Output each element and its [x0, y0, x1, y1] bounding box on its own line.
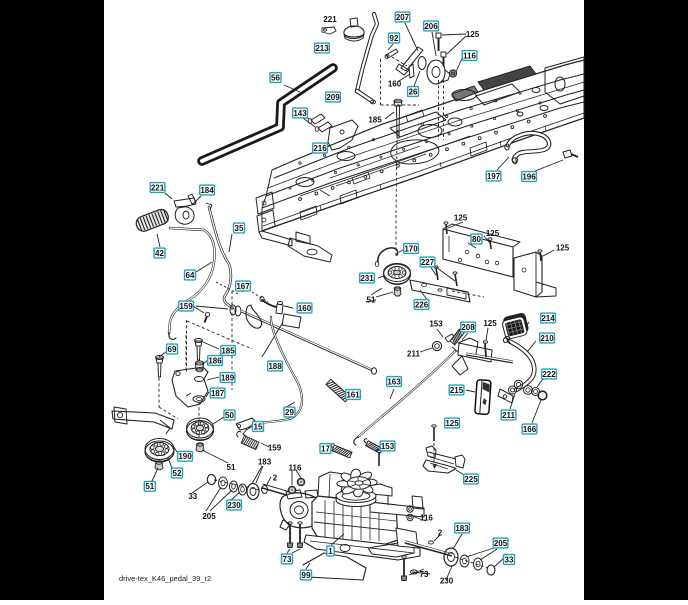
svg-text:125: 125	[486, 229, 500, 238]
svg-text:51: 51	[367, 295, 376, 304]
svg-text:73: 73	[283, 555, 292, 564]
svg-text:206: 206	[424, 22, 438, 31]
svg-text:52: 52	[173, 469, 182, 478]
svg-text:51: 51	[227, 463, 236, 472]
svg-text:197: 197	[487, 172, 501, 181]
svg-text:29: 29	[285, 408, 294, 417]
svg-text:170: 170	[404, 244, 418, 253]
svg-text:190: 190	[178, 452, 192, 461]
svg-text:221: 221	[151, 183, 165, 192]
svg-text:214: 214	[541, 314, 555, 323]
svg-text:196: 196	[522, 172, 536, 181]
svg-text:163: 163	[387, 377, 401, 386]
svg-text:215: 215	[450, 386, 464, 395]
svg-text:56: 56	[271, 73, 280, 82]
svg-text:153: 153	[429, 319, 443, 328]
svg-text:15: 15	[254, 422, 263, 431]
svg-text:125: 125	[445, 419, 459, 428]
svg-text:213: 213	[315, 44, 329, 53]
svg-text:159: 159	[179, 302, 193, 311]
svg-text:99: 99	[302, 571, 311, 580]
svg-text:35: 35	[235, 224, 244, 233]
svg-text:161: 161	[346, 390, 360, 399]
svg-text:125: 125	[483, 319, 497, 328]
svg-text:216: 216	[313, 144, 327, 153]
svg-text:208: 208	[461, 323, 475, 332]
svg-text:183: 183	[455, 524, 469, 533]
svg-text:188: 188	[268, 362, 282, 371]
svg-text:207: 207	[396, 13, 410, 22]
svg-text:183: 183	[258, 457, 272, 466]
svg-text:222: 222	[542, 370, 556, 379]
svg-text:167: 167	[236, 282, 250, 291]
svg-text:205: 205	[494, 539, 508, 548]
svg-text:33: 33	[505, 555, 514, 564]
svg-text:2: 2	[438, 528, 443, 537]
svg-text:drive-tex_K46_pedal_39_r2: drive-tex_K46_pedal_39_r2	[119, 574, 211, 583]
svg-text:160: 160	[298, 304, 312, 313]
svg-text:166: 166	[523, 425, 537, 434]
svg-text:209: 209	[326, 93, 340, 102]
svg-text:1: 1	[328, 547, 333, 556]
svg-text:17: 17	[321, 444, 330, 453]
svg-text:211: 211	[502, 411, 515, 420]
svg-text:226: 226	[415, 300, 429, 309]
svg-text:33: 33	[188, 492, 197, 501]
svg-text:185: 185	[368, 115, 382, 124]
svg-text:231: 231	[360, 274, 374, 283]
svg-text:184: 184	[200, 186, 214, 195]
svg-text:205: 205	[202, 512, 216, 521]
svg-text:230: 230	[440, 576, 454, 585]
svg-text:69: 69	[168, 345, 177, 354]
svg-text:185: 185	[221, 346, 235, 355]
svg-text:125: 125	[556, 243, 570, 252]
svg-text:225: 225	[464, 475, 478, 484]
svg-text:80: 80	[472, 235, 481, 244]
svg-text:50: 50	[225, 411, 234, 420]
svg-text:160: 160	[388, 79, 402, 88]
svg-text:189: 189	[221, 373, 235, 382]
svg-text:64: 64	[186, 271, 195, 280]
svg-text:92: 92	[390, 34, 399, 43]
svg-text:143: 143	[293, 109, 307, 118]
svg-text:227: 227	[421, 258, 435, 267]
svg-text:73: 73	[420, 570, 429, 579]
svg-text:230: 230	[227, 501, 241, 510]
svg-text:153: 153	[381, 442, 395, 451]
svg-text:125: 125	[466, 30, 480, 39]
svg-text:159: 159	[268, 443, 282, 452]
svg-text:51: 51	[145, 482, 154, 491]
svg-text:125: 125	[454, 213, 468, 222]
svg-text:186: 186	[208, 356, 222, 365]
svg-text:116: 116	[420, 514, 433, 523]
svg-text:210: 210	[540, 334, 554, 343]
svg-text:42: 42	[155, 249, 164, 258]
svg-text:221: 221	[323, 15, 337, 24]
svg-text:211: 211	[407, 349, 420, 358]
svg-text:2: 2	[273, 473, 278, 482]
svg-text:116: 116	[463, 51, 476, 60]
svg-text:26: 26	[409, 87, 418, 96]
svg-text:187: 187	[211, 389, 225, 398]
svg-text:116: 116	[289, 463, 302, 472]
